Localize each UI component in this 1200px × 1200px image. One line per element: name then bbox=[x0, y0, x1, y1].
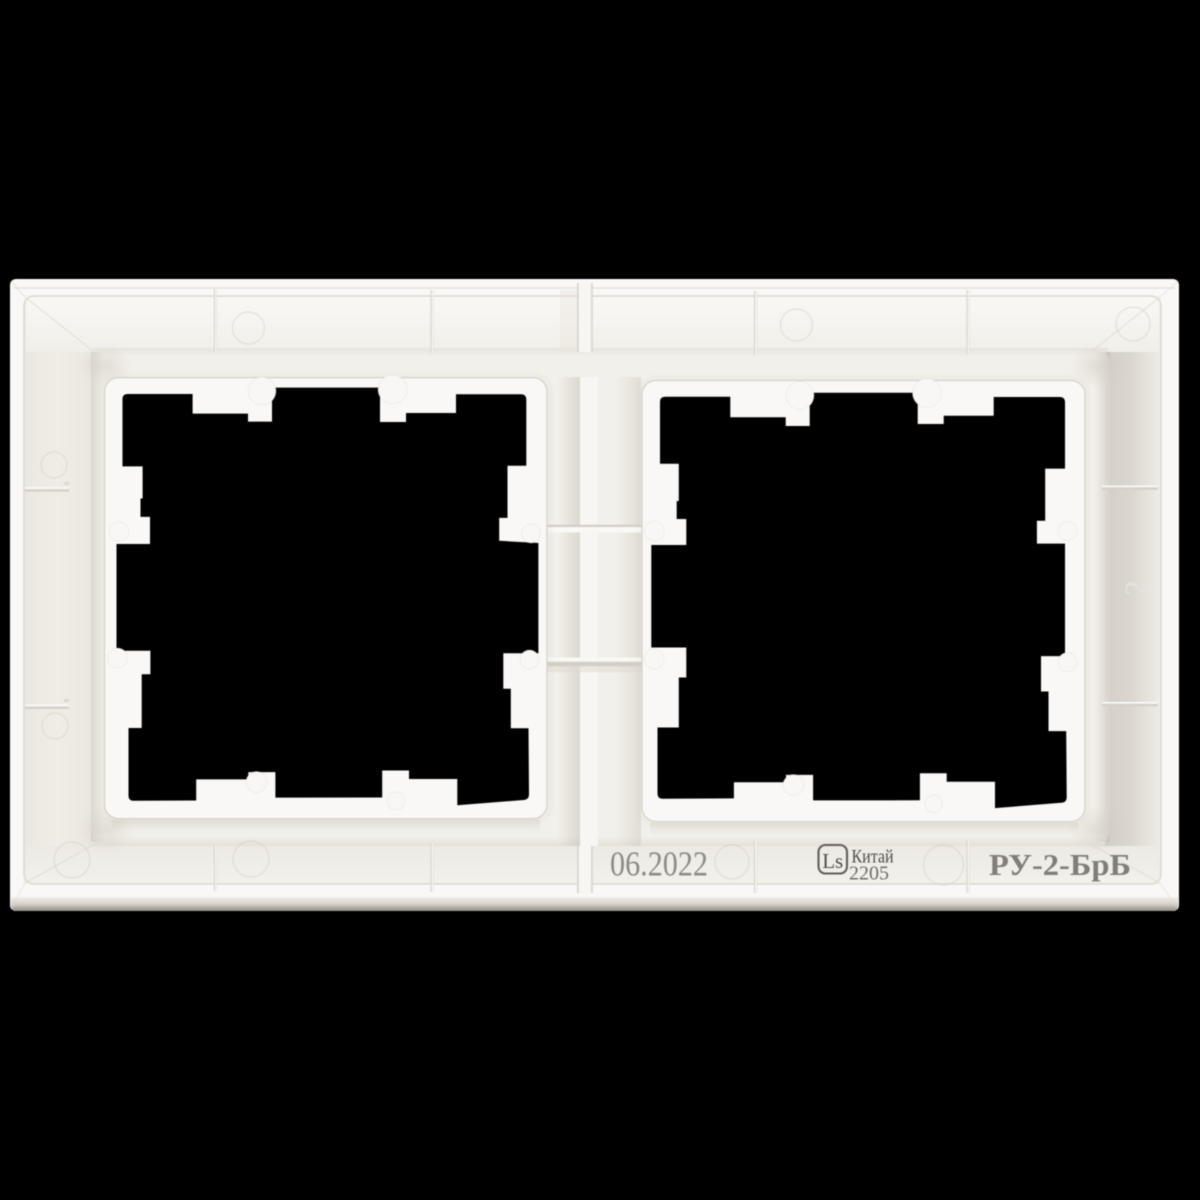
svg-text:Ls: Ls bbox=[822, 849, 843, 873]
svg-text:06.2022: 06.2022 bbox=[610, 845, 708, 884]
svg-text:РУ-2-БрБ: РУ-2-БрБ bbox=[989, 848, 1131, 882]
svg-text:2: 2 bbox=[1119, 581, 1152, 596]
svg-text:2205: 2205 bbox=[849, 863, 889, 885]
